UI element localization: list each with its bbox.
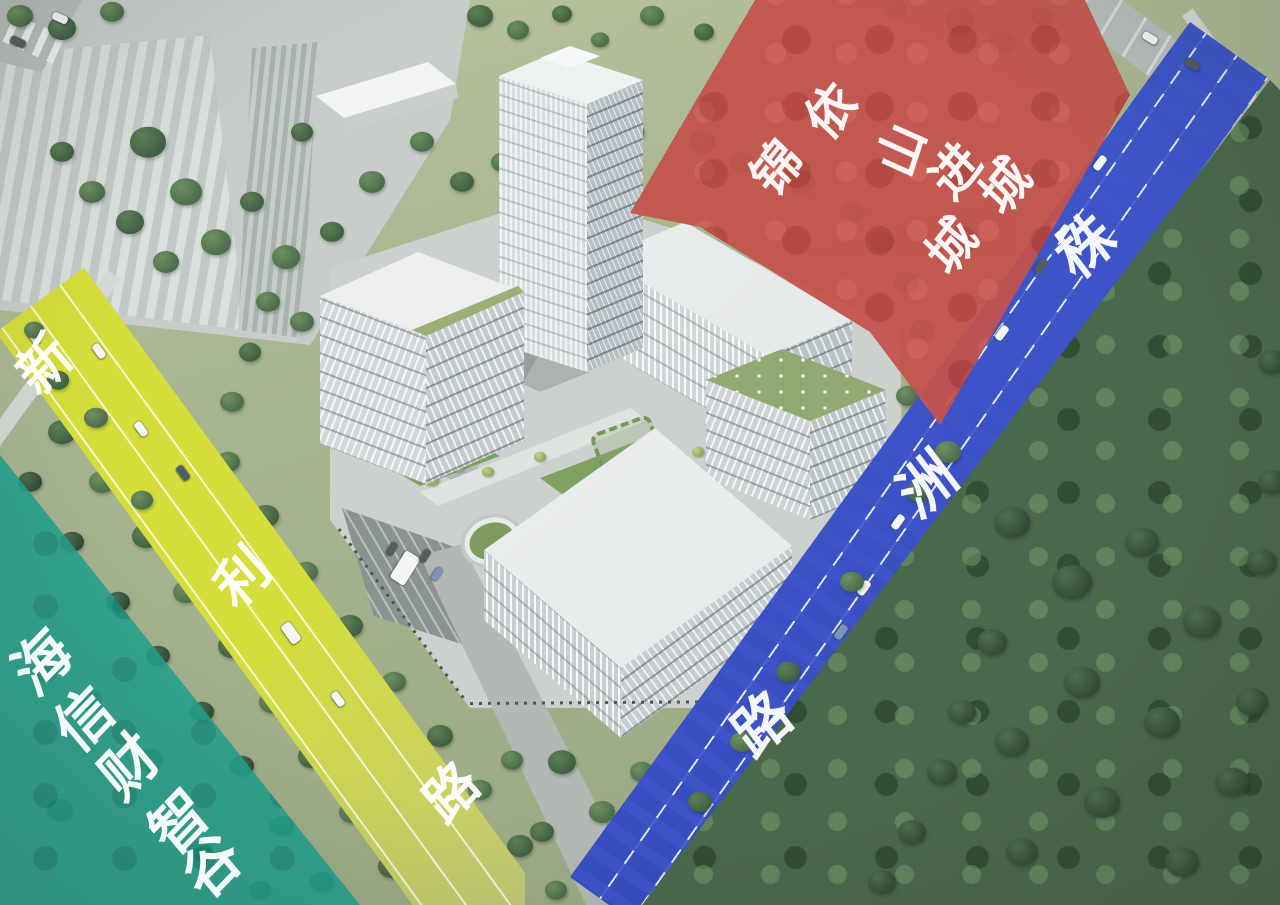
tree (190, 702, 214, 722)
red-plot-label-char: 锦 (744, 131, 811, 205)
tree (886, 0, 906, 17)
tree (116, 210, 144, 234)
tree (602, 580, 614, 590)
tree (378, 854, 406, 878)
tree (106, 592, 130, 612)
tree (253, 505, 279, 527)
tree (989, 31, 1015, 53)
blue-road-label-char: 路 (724, 682, 802, 768)
tree (744, 742, 768, 762)
tree (507, 835, 533, 857)
tree (1258, 350, 1280, 374)
tree (689, 131, 715, 153)
tree (1052, 565, 1092, 599)
tree (688, 792, 712, 812)
tree (1239, 291, 1265, 313)
car (994, 324, 1010, 342)
tree (427, 725, 453, 747)
red-plot-label-char: 依 (798, 74, 865, 148)
tree (894, 272, 918, 292)
tree (382, 672, 406, 692)
tree (450, 172, 474, 192)
car (26, 328, 42, 346)
tree (501, 751, 523, 770)
tree (239, 343, 261, 362)
tree (173, 581, 199, 603)
car (330, 690, 346, 708)
tree (218, 634, 246, 658)
tree (1137, 209, 1167, 235)
tree (840, 572, 864, 592)
tree (338, 290, 366, 314)
tree (482, 467, 494, 477)
tree (945, 7, 975, 33)
tree (898, 820, 926, 844)
tree (581, 863, 603, 882)
car (1141, 30, 1159, 45)
tree (1170, 322, 1194, 342)
tree (1188, 250, 1216, 274)
tree (730, 152, 754, 172)
tree (977, 629, 1007, 655)
tree (694, 24, 714, 41)
tree (230, 756, 254, 776)
red-plot-label-char: 城 (973, 149, 1040, 223)
tree (18, 472, 42, 492)
campus-fence (788, 559, 906, 702)
tree (621, 893, 643, 905)
tree (170, 178, 202, 205)
tree (896, 386, 920, 406)
tree (24, 322, 44, 339)
car (133, 420, 149, 438)
tree (870, 232, 894, 252)
tree (408, 447, 420, 457)
car (1033, 257, 1049, 275)
car (175, 464, 191, 482)
tree (84, 408, 108, 428)
tree (290, 312, 314, 332)
teal-area-label-char: 海 (4, 620, 82, 706)
bus (389, 550, 420, 586)
teal-area-label-char: 谷 (174, 824, 252, 905)
car (430, 566, 443, 582)
tree (425, 474, 439, 486)
tree (240, 192, 264, 212)
tree (1165, 848, 1199, 877)
tree (1144, 707, 1180, 738)
car (91, 342, 107, 360)
tree (291, 123, 313, 142)
tree (725, 793, 747, 812)
tree (548, 750, 576, 774)
tower-entrance-stairs (541, 288, 659, 362)
tree (927, 759, 957, 785)
tree (216, 452, 240, 472)
tree (359, 171, 385, 193)
tree (646, 615, 658, 625)
tree (552, 6, 572, 23)
car (1055, 223, 1071, 241)
tree (995, 728, 1029, 757)
tree (310, 872, 334, 892)
car (856, 579, 872, 597)
tree (730, 732, 754, 752)
tree (1125, 528, 1159, 557)
tree (591, 32, 609, 47)
tree (259, 691, 285, 713)
tree (339, 801, 365, 823)
tree (48, 420, 76, 444)
tree (326, 342, 350, 362)
tree (580, 142, 604, 162)
tree (100, 2, 124, 22)
red-plot-label-char: 进 (923, 134, 990, 208)
tree (79, 181, 105, 203)
tree (1258, 470, 1280, 494)
yellow-road-label-char: 路 (416, 753, 488, 833)
tree (410, 132, 434, 152)
tree (829, 591, 855, 613)
tree (559, 601, 573, 613)
tree (1006, 838, 1038, 865)
tree (437, 436, 447, 445)
tree (1204, 176, 1228, 196)
tree (1236, 688, 1268, 715)
tree (530, 822, 554, 842)
tree (948, 700, 976, 724)
tree (1064, 667, 1100, 698)
tree (994, 507, 1030, 538)
yellow-road-label-char: 利 (207, 538, 279, 618)
tree (298, 744, 326, 768)
tree (871, 553, 893, 572)
tree (545, 881, 567, 900)
tree (50, 142, 74, 162)
tree (47, 799, 73, 821)
bus (280, 621, 302, 645)
red-plot-label-char: 山 (871, 116, 932, 184)
tree (357, 321, 379, 340)
crosswalk-bottom (656, 819, 744, 905)
tree (337, 615, 363, 637)
tree (89, 471, 115, 493)
tree (1131, 127, 1153, 146)
tree (1031, 7, 1053, 26)
tree (640, 6, 664, 26)
tree (589, 801, 615, 823)
tree (1084, 787, 1120, 818)
tree (146, 646, 170, 666)
teal-area-label-char: 财 (91, 724, 169, 810)
crosswalk-topleft (2, 14, 69, 66)
car (51, 11, 69, 25)
tree (249, 881, 271, 900)
car (418, 548, 431, 564)
tree (270, 816, 294, 836)
east-terrace-stairs (845, 432, 952, 523)
tree (60, 532, 84, 552)
tree (153, 251, 179, 273)
tree (620, 122, 644, 142)
tree (789, 171, 815, 193)
tree (1219, 371, 1245, 393)
tree (868, 870, 896, 894)
campus-fence (470, 700, 788, 705)
tree (670, 465, 682, 475)
tree (555, 508, 565, 517)
tree (692, 447, 704, 457)
tree (910, 320, 934, 340)
tree (630, 762, 654, 782)
tree (1250, 432, 1274, 452)
tree (534, 452, 546, 462)
tree (131, 491, 153, 510)
car (890, 513, 906, 531)
tree (78, 690, 102, 710)
tree (137, 749, 163, 771)
tree (294, 562, 318, 582)
tree (1183, 606, 1221, 638)
teal-area-label-char: 智 (141, 780, 219, 866)
tree (220, 392, 244, 412)
car (385, 541, 398, 557)
tree (840, 202, 864, 222)
tree (467, 5, 493, 27)
hedge-garden (589, 413, 664, 474)
teal-area-label-char: 信 (46, 677, 124, 763)
tree (452, 462, 464, 472)
tree (592, 633, 604, 643)
sidewalk-blue-road (1182, 8, 1280, 905)
tree (468, 780, 492, 800)
blue-road-label-char: 株 (1047, 204, 1125, 290)
tree (516, 595, 528, 605)
tree (272, 245, 300, 269)
tree (1110, 172, 1134, 192)
red-plot-label-char: 城 (919, 209, 986, 283)
campus-fence (338, 528, 466, 700)
tree (491, 153, 513, 172)
bus (751, 771, 773, 795)
tree (201, 229, 231, 255)
car (1092, 154, 1108, 172)
circular-fountain (458, 510, 526, 572)
tree (256, 292, 280, 312)
sidewalk-yellow-road (0, 270, 121, 894)
tree (130, 127, 166, 158)
tree (669, 821, 695, 843)
tree (320, 222, 344, 242)
tree (1215, 768, 1249, 797)
tree (188, 840, 212, 860)
scene: 依山进城锦城海信财智谷株洲路新利路 (0, 0, 1280, 905)
tree (776, 662, 800, 682)
tree (132, 524, 160, 548)
tree (507, 21, 529, 40)
tree (1247, 549, 1277, 575)
